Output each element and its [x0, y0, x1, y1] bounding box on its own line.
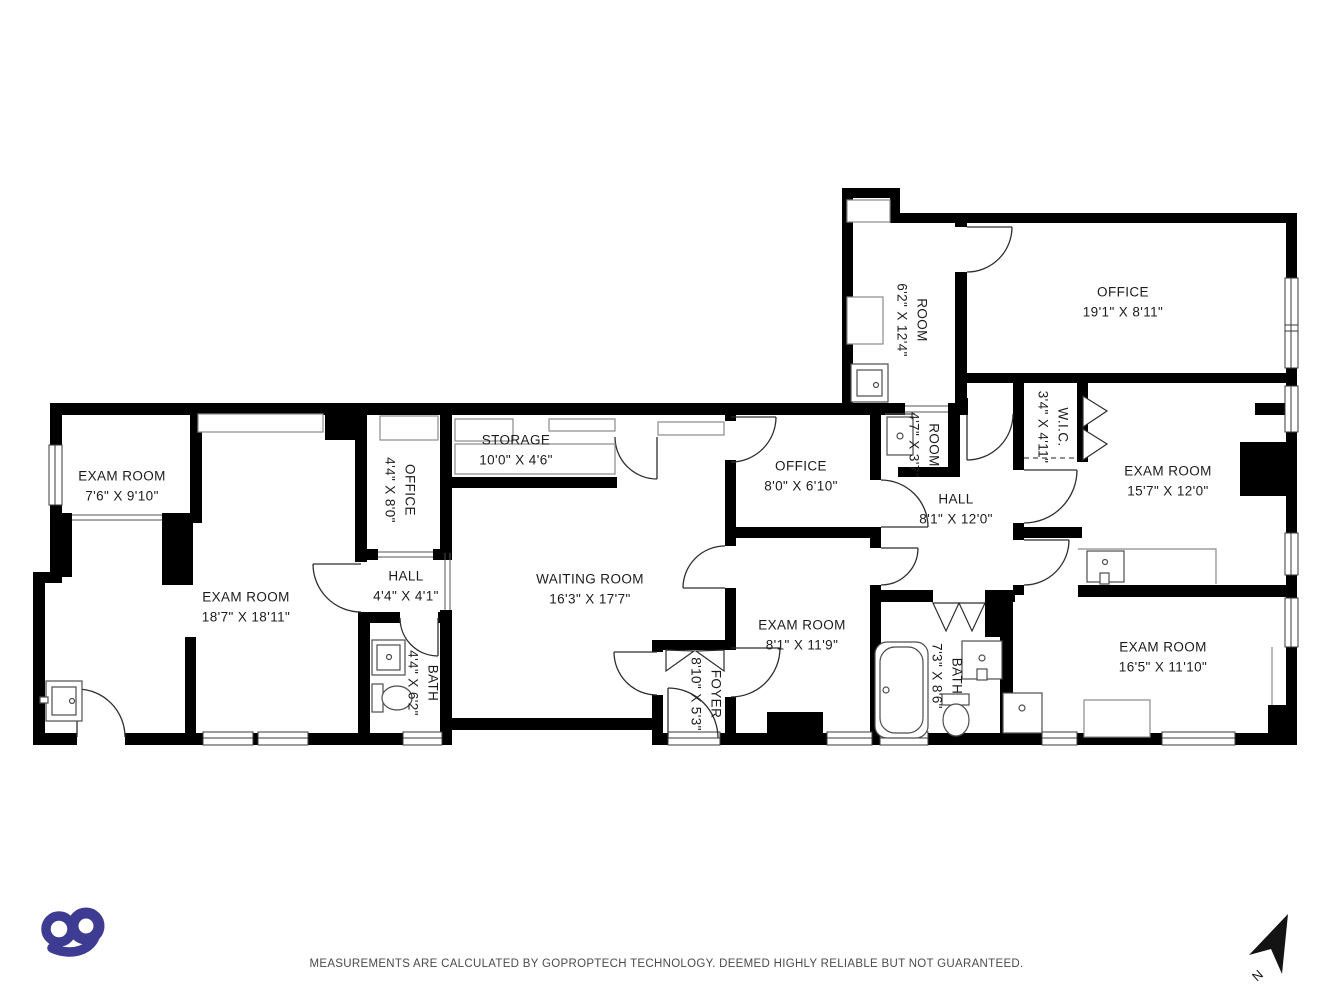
room-label-exam-room-8-1: EXAM ROOM8'1" X 11'9": [758, 615, 846, 654]
floorplan-page: EXAM ROOM7'6" X 9'10" EXAM ROOM18'7" X 1…: [0, 0, 1333, 1000]
north-arrow-icon: N: [1235, 898, 1307, 993]
room-label-room-6-2: ROOM6'2" X 12'4": [892, 283, 931, 357]
logo-icon: [38, 900, 108, 962]
room-label-storage: STORAGE10'0" X 4'6": [479, 430, 553, 469]
disclaimer-text: MEASUREMENTS ARE CALCULATED BY GOPROPTEC…: [0, 958, 1333, 970]
fixtures: [40, 200, 1272, 738]
room-label-office-4-4: OFFICE4'4" X 8'0": [380, 457, 419, 523]
room-label-hall-8-1: HALL8'1" X 12'0": [919, 489, 993, 528]
room-label-office-19-1: OFFICE19'1" X 8'11": [1083, 282, 1164, 321]
walls: [33, 188, 1297, 745]
north-arrow: N: [1235, 898, 1307, 998]
room-label-bath-4-4: BATH4'4" X 6'2": [403, 650, 442, 716]
room-label-wic: W.I.C.3'4" X 4'11": [1033, 391, 1072, 464]
windows: [49, 278, 1298, 745]
room-label-exam-room-7-6: EXAM ROOM7'6" X 9'10": [78, 466, 166, 505]
room-label-waiting-room: WAITING ROOM16'3" X 17'7": [536, 569, 644, 608]
room-label-exam-room-18-7: EXAM ROOM18'7" X 18'11": [202, 587, 290, 626]
room-label-bath-7-3: BATH7'3" X 8'6": [927, 643, 966, 709]
goproptech-logo: go: [38, 900, 108, 967]
room-label-exam-room-15-7: EXAM ROOM15'7" X 12'0": [1124, 461, 1212, 500]
room-label-room-4-7: ROOM4'7" X 3'7": [904, 412, 943, 478]
room-label-exam-room-16-5: EXAM ROOM16'5" X 11'10": [1119, 637, 1207, 676]
room-label-hall-4-4: HALL4'4" X 4'1": [373, 566, 439, 605]
room-label-foyer: FOYER8'10" X 5'3": [686, 657, 725, 731]
room-label-office-8-0: OFFICE8'0" X 6'10": [764, 456, 838, 495]
